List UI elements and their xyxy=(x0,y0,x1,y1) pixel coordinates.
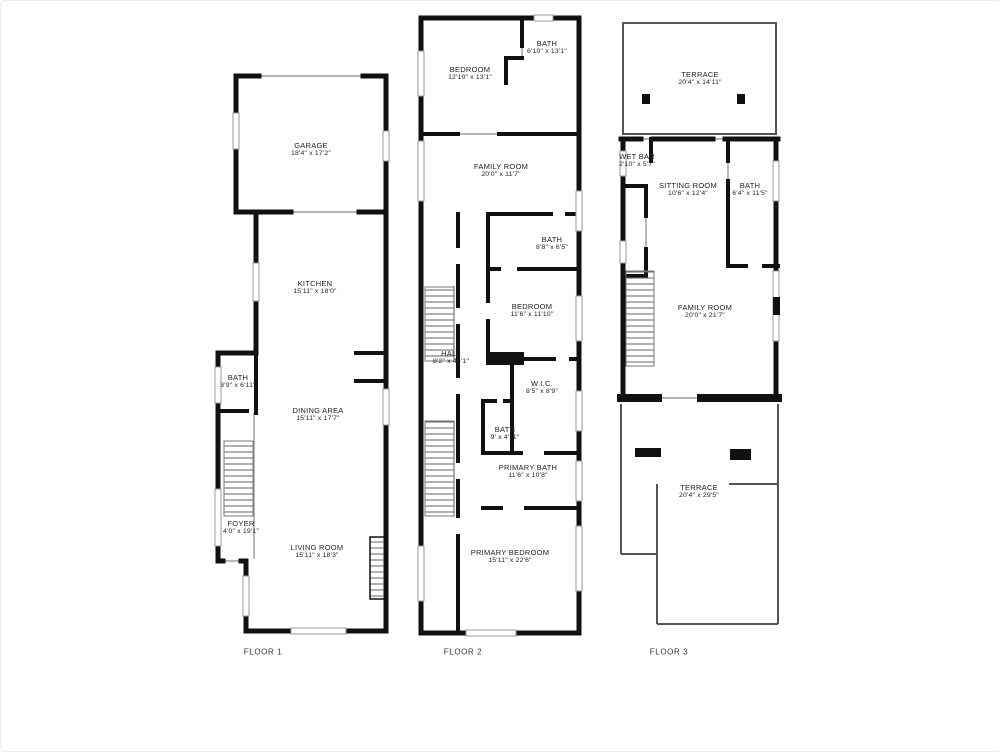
floorplan-drawing xyxy=(1,1,1000,751)
floor-3-plan xyxy=(620,23,780,624)
room-label-foyer: FOYER 4'0" x 19'1" xyxy=(223,519,259,537)
room-label-bath-f1: BATH 3'9" x 6'11" xyxy=(220,373,255,391)
wall-chunk xyxy=(773,297,780,315)
terrace-post xyxy=(642,94,650,104)
room-label-terrace-top: TERRACE 20'4" x 14'11" xyxy=(678,70,721,88)
floorplan-canvas: GARAGE 18'4" x 17'2" KITCHEN 15'11" x 18… xyxy=(0,0,1000,752)
floor-caption-1: FLOOR 1 xyxy=(244,648,282,657)
room-label-terrace-bottom: TERRACE 20'4" x 29'5" xyxy=(679,483,719,501)
fireplace xyxy=(370,537,385,599)
room-label-wet-bar: WET BAR 2'10" x 5'7" xyxy=(619,152,655,170)
floor-2-plan xyxy=(418,15,582,636)
terrace-planter xyxy=(730,449,751,460)
room-label-bedroom-2: BEDROOM 11'6" x 11'10" xyxy=(511,302,554,320)
staircase-floor-3 xyxy=(626,271,654,366)
terrace-bottom-outline xyxy=(621,404,778,624)
room-label-sitting-room: SITTING ROOM 10'6" x 12'4" xyxy=(659,181,717,199)
room-label-kitchen: KITCHEN 15'11" x 18'0" xyxy=(293,279,336,297)
room-label-hall: HALL 8'2" x 45'1" xyxy=(433,349,469,367)
staircase-floor-2-lower xyxy=(425,421,454,516)
floor-caption-3: FLOOR 3 xyxy=(650,648,688,657)
terrace-planter xyxy=(635,448,661,457)
room-label-bedroom-1: BEDROOM 12'10" x 13'1" xyxy=(448,65,492,83)
floor-caption-2: FLOOR 2 xyxy=(444,648,482,657)
room-label-family-room-f2: FAMILY ROOM 20'0" x 11'7" xyxy=(474,162,528,180)
terrace-post xyxy=(737,94,745,104)
room-label-dining-area: DINING AREA 15'11" x 17'7" xyxy=(292,406,343,424)
room-label-living-room: LIVING ROOM 15'11" x 18'3" xyxy=(291,543,344,561)
plumbing-wall xyxy=(486,352,524,365)
room-label-primary-bath: PRIMARY BATH 11'6" x 10'8" xyxy=(499,463,557,481)
room-label-bath-top-f2: BATH 6'10" x 13'1" xyxy=(527,39,567,57)
room-label-bath-small-f2: BATH 9' x 4'11" xyxy=(491,425,520,443)
room-label-bath-f3: BATH 6'4" x 11'5" xyxy=(732,181,767,199)
staircase-floor-1 xyxy=(224,441,253,516)
room-label-primary-bedroom: PRIMARY BEDROOM 15'11" x 22'6" xyxy=(471,548,550,566)
room-label-garage: GARAGE 18'4" x 17'2" xyxy=(291,141,331,159)
room-label-wic: W.I.C. 8'5" x 8'9" xyxy=(526,379,558,397)
room-label-bath-mid-f2: BATH 8'8" x 6'5" xyxy=(536,235,568,253)
room-label-family-room-f3: FAMILY ROOM 20'0" x 21'7" xyxy=(678,303,732,321)
